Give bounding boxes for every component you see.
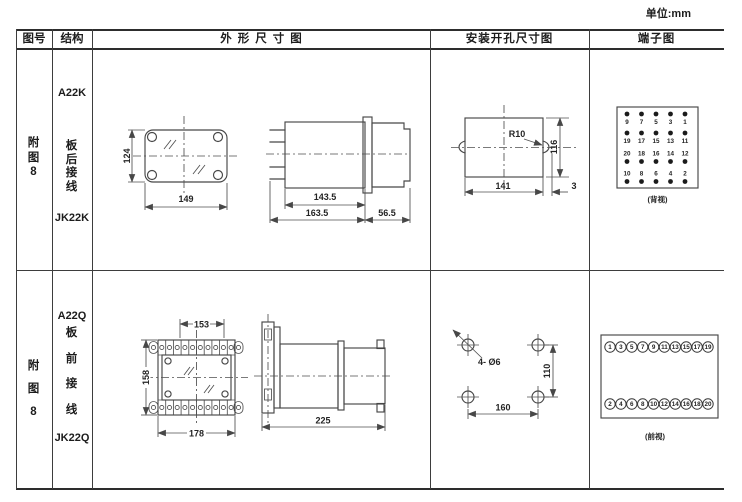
figure-no-r2: 附图8: [27, 355, 40, 424]
terminal-label: 11: [682, 138, 689, 145]
outline-side-view-r2: 225: [253, 313, 395, 435]
header-outline: 外形尺寸图: [92, 31, 430, 48]
outline-front-view-r1: 124 149: [118, 83, 250, 215]
terminal-caption-r1: (背视): [648, 194, 668, 204]
table-bottom-border: [16, 488, 724, 490]
terminal-label: 18: [694, 401, 702, 408]
col-divider-2: [92, 29, 93, 489]
terminal-label: 19: [704, 344, 712, 351]
dim-side-length-r2: 225: [315, 416, 330, 426]
dim-mount-holes-r2: 4- Ø6: [478, 357, 501, 367]
row-divider: [16, 270, 724, 271]
terminal-label: 15: [683, 344, 691, 351]
dim-mount-edge-r1: 3: [571, 181, 576, 191]
dim-side-body-r1: 143.5: [314, 192, 337, 202]
terminal-label: 13: [667, 138, 675, 145]
header-figure: 图号: [16, 31, 52, 48]
terminal-label: 18: [638, 151, 646, 158]
terminal-view-r2: 1 3 5 7 9 11 13 15 17 19 2 4 6 8 10 12 1…: [593, 328, 732, 446]
dim-front-width-r1: 149: [178, 194, 193, 204]
terminal-label: 14: [667, 151, 675, 158]
terminal-view-r1: 9 7 5 3 1 19 17 15 13 11 20 18 16 14 12 …: [608, 98, 712, 210]
terminal-label: 2: [608, 401, 612, 408]
terminal-label: 1: [683, 119, 687, 126]
header-bottom-border: [16, 48, 724, 50]
terminal-label: 7: [641, 344, 645, 351]
terminal-label: 12: [681, 151, 689, 158]
dim-front-height-r2: 158: [141, 370, 151, 385]
terminal-label: 9: [652, 344, 656, 351]
unit-label: 单位:mm: [598, 5, 691, 21]
outline-side-view-r1: 143.5 163.5 56.5: [258, 83, 418, 228]
terminal-label: 20: [704, 401, 712, 408]
terminal-label: 20: [623, 151, 631, 158]
datasheet-page: 单位:mm 图号 结构 外形尺寸图 安装开孔尺寸图 端子图 附图8 A22K 板…: [0, 0, 742, 502]
dim-side-total-r1: 163.5: [306, 208, 329, 218]
dim-mount-height-r1: 116: [549, 140, 559, 155]
dim-front-width-r2: 178: [189, 429, 204, 439]
outline-front-view-r2: 153 158 178: [133, 308, 257, 442]
terminal-label: 7: [640, 119, 644, 126]
dim-side-depth-r1: 56.5: [378, 208, 396, 218]
terminal-label: 8: [640, 171, 644, 178]
terminal-label: 16: [652, 151, 660, 158]
terminal-label: 4: [619, 401, 623, 408]
terminal-label: 2: [683, 171, 687, 178]
dim-mount-width-r2: 160: [495, 403, 510, 413]
terminal-label: 19: [623, 138, 631, 145]
terminal-label: 8: [641, 401, 645, 408]
terminal-label: 10: [650, 401, 658, 408]
mounting-view-r2: 4- Ø6 110 160: [448, 328, 587, 427]
terminal-label: 13: [672, 344, 680, 351]
structure-socket-r2: JK22Q: [52, 432, 92, 444]
terminal-label: 16: [683, 401, 691, 408]
header-mounting: 安装开孔尺寸图: [430, 31, 589, 48]
terminal-label: 3: [619, 344, 623, 351]
structure-socket-r1: JK22K: [52, 212, 92, 224]
terminal-label: 15: [652, 138, 660, 145]
terminal-label: 6: [630, 401, 634, 408]
terminal-label: 10: [623, 171, 631, 178]
dim-front-height-r1: 124: [122, 148, 132, 163]
terminal-label: 3: [669, 119, 673, 126]
structure-model-r1: A22K: [52, 87, 92, 99]
col-divider-4: [589, 29, 590, 489]
figure-no-r1: 附图8: [27, 136, 40, 180]
terminal-label: 12: [661, 401, 669, 408]
header-structure: 结构: [52, 31, 92, 48]
dim-mount-radius-r1: R10: [509, 129, 526, 139]
terminal-label: 6: [654, 171, 658, 178]
table-left-border: [16, 29, 17, 489]
dim-front-top-r2: 153: [194, 320, 209, 330]
terminal-label: 11: [661, 344, 668, 351]
terminal-label: 4: [669, 171, 673, 178]
dim-mount-width-r1: 141: [495, 181, 510, 191]
terminal-label: 5: [654, 119, 658, 126]
mounting-view-r1: R10 141 3 116: [443, 93, 585, 205]
terminal-label: 17: [638, 138, 646, 145]
terminal-label: 5: [630, 344, 634, 351]
terminal-caption-r2: (前视): [645, 431, 665, 441]
structure-wiring-r1: 板后接线: [65, 140, 78, 194]
col-divider-3: [430, 29, 431, 489]
terminal-label: 9: [625, 119, 629, 126]
terminal-label: 1: [608, 344, 612, 351]
terminal-label: 17: [694, 344, 702, 351]
header-terminal: 端子图: [589, 31, 724, 48]
terminal-label: 14: [672, 401, 680, 408]
structure-wiring-r2: 板前接线: [65, 321, 78, 423]
dim-mount-height-r2: 110: [542, 364, 552, 379]
